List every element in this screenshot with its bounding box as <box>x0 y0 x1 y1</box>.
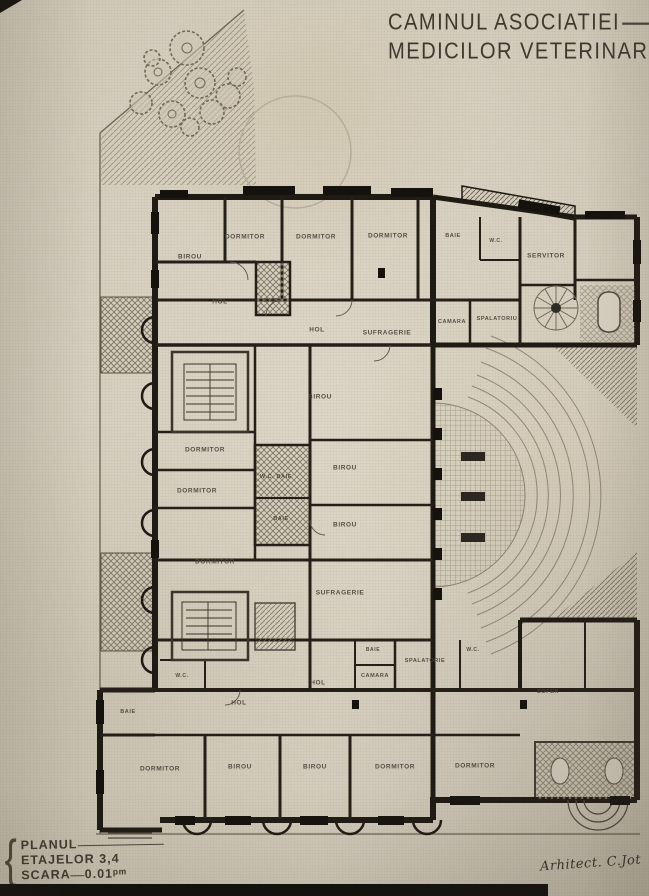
room-label: BAIE <box>273 516 289 522</box>
room-label: BAIE <box>445 233 461 239</box>
room-label: BIROU <box>228 764 252 771</box>
room-label: HOL <box>231 700 247 707</box>
room-label: BIROU <box>303 764 327 771</box>
room-label: W.C. <box>466 647 479 653</box>
stair-bottom-right <box>535 742 635 800</box>
room-label: W.C. <box>489 238 502 244</box>
room-label: DORMITOR <box>296 234 336 241</box>
garden-area <box>101 11 351 208</box>
courtyard-hatch-left <box>101 297 154 651</box>
room-label: W.C. BAIE <box>260 474 292 480</box>
room-label: CAMARA <box>361 673 389 679</box>
room-label: BAIE <box>120 709 136 715</box>
dash-line <box>78 843 164 846</box>
bay-windows <box>142 317 441 834</box>
room-label: DORMITOR <box>177 488 217 495</box>
staircase-upper-left <box>172 352 248 432</box>
room-label: DORMITOR <box>195 559 235 566</box>
plan-label-line: PLANUL <box>21 835 164 852</box>
room-label: DORMITOR <box>375 764 415 771</box>
room-label: DORMITOR <box>140 766 180 773</box>
room-label: DORMITOR <box>455 763 495 770</box>
room-label: DORMITOR <box>185 447 225 454</box>
room-label: BIROU <box>333 465 357 472</box>
blueprint-paper: BIROUDORMITORDORMITORDORMITORBAIEW.C.SER… <box>0 0 649 896</box>
title-underline <box>622 23 649 25</box>
room-label: SPALATORIU <box>477 316 518 322</box>
room-label: W.C. <box>175 673 188 679</box>
scan-corner-mark <box>0 0 22 13</box>
room-label: BAIE <box>263 298 279 304</box>
room-label: SUFRAGERIE <box>363 330 412 337</box>
room-label: SERVITOR <box>527 253 565 260</box>
title-line-2: MEDICILOR VETERINARI <box>388 37 636 66</box>
room-label: BIROU <box>333 522 357 529</box>
plan-annotation: { PLANUL ETAJELOR 3,4 SCARA0.01ᵖᵐ <box>2 836 164 882</box>
plan-scale-line: SCARA0.01ᵖᵐ <box>22 865 165 882</box>
room-label: HOL <box>212 299 228 306</box>
dash-line <box>71 875 85 876</box>
room-label: DORMITOR <box>368 233 408 240</box>
room-label: SOFER <box>537 689 559 695</box>
floor-plan-drawing <box>0 0 649 896</box>
room-label: CAMARA <box>438 319 466 325</box>
room-label: HOL <box>310 680 326 687</box>
drawing-title: CAMINUL ASOCIATIEI MEDICILOR VETERINARI <box>388 8 636 66</box>
room-label: BIROU <box>178 254 202 261</box>
room-label: BIROU <box>308 394 332 401</box>
semicircular-terrace <box>433 336 637 654</box>
scan-edge-strip <box>0 884 548 896</box>
room-label: HOL <box>309 327 325 334</box>
room-label: BAIE <box>366 647 380 653</box>
spiral-stair <box>534 286 578 330</box>
brace-glyph: { <box>5 836 17 882</box>
room-label: DORMITOR <box>225 234 265 241</box>
staircase-lower-left <box>172 592 248 660</box>
room-label: SUFRAGERIE <box>316 590 365 597</box>
title-line-1: CAMINUL ASOCIATIEI <box>388 8 636 37</box>
room-label: SPALATORIE <box>405 658 446 664</box>
